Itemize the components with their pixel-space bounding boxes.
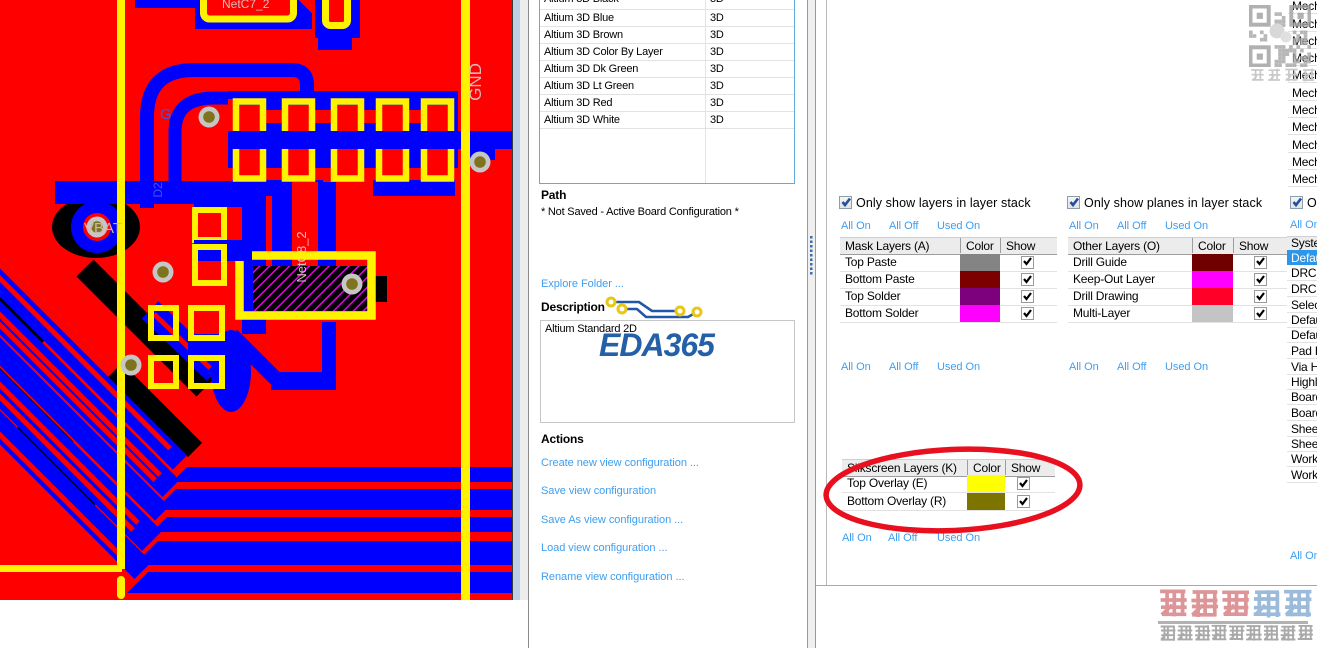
svg-text:G: G (160, 106, 172, 123)
svg-text:GND: GND (466, 63, 485, 101)
svg-text:VBAT: VBAT (84, 220, 122, 237)
svg-text:D2: D2 (151, 182, 165, 198)
